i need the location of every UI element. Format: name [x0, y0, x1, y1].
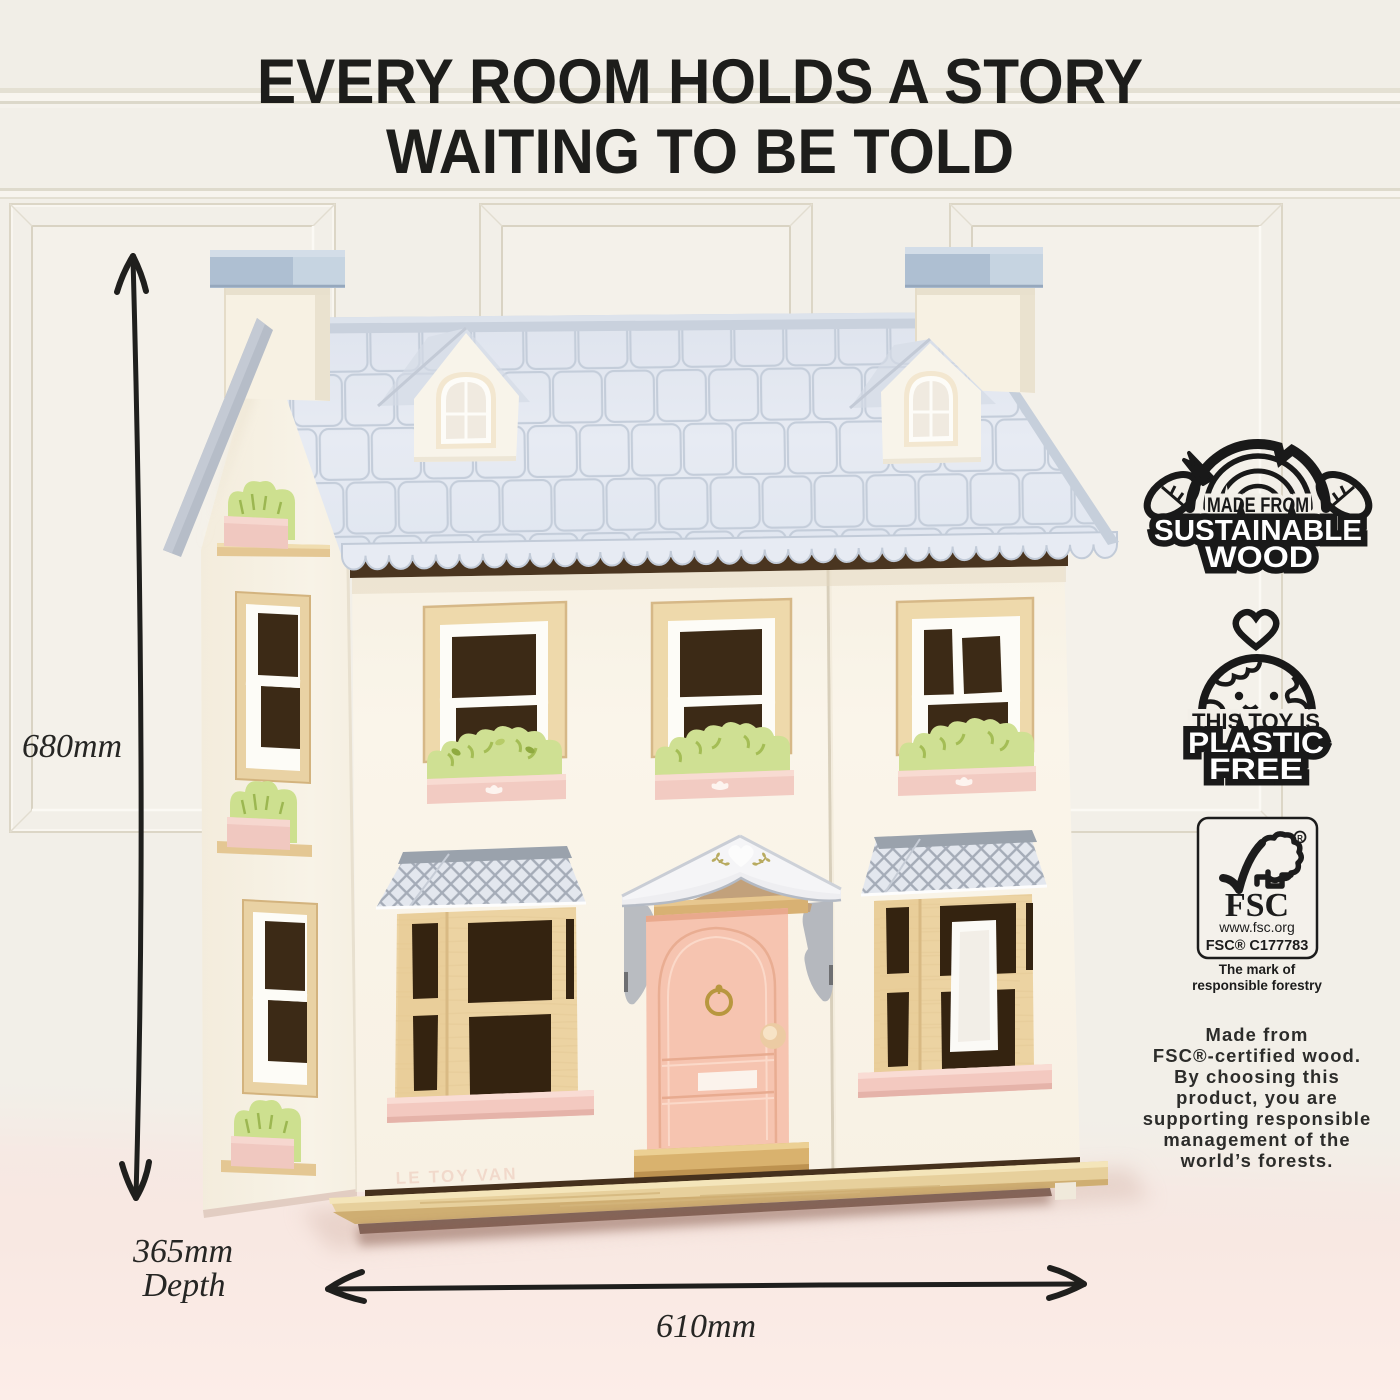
svg-text:WAITING TO BE TOLD: WAITING TO BE TOLD [386, 117, 1014, 187]
svg-text:responsible forestry: responsible forestry [1192, 978, 1322, 993]
svg-text:world’s forests.: world’s forests. [1180, 1150, 1334, 1171]
svg-text:R: R [1297, 834, 1303, 843]
svg-text:FSC® C177783: FSC® C177783 [1206, 938, 1309, 954]
svg-text:FSC®-certified wood.: FSC®-certified wood. [1153, 1045, 1361, 1066]
svg-text:680mm: 680mm [22, 728, 122, 765]
svg-text:WOOD: WOOD [1205, 541, 1313, 574]
svg-text:management of the: management of the [1163, 1129, 1350, 1150]
svg-text:365mm: 365mm [132, 1233, 233, 1270]
svg-text:Made from: Made from [1206, 1024, 1309, 1045]
svg-text:Depth: Depth [141, 1267, 225, 1304]
svg-text:EVERY ROOM HOLDS A STORY: EVERY ROOM HOLDS A STORY [257, 47, 1143, 117]
svg-text:supporting responsible: supporting responsible [1143, 1108, 1372, 1129]
svg-text:610mm: 610mm [656, 1308, 756, 1345]
svg-text:FREE: FREE [1209, 753, 1303, 786]
svg-text:product, you are: product, you are [1176, 1087, 1338, 1108]
svg-text:By choosing this: By choosing this [1174, 1066, 1340, 1087]
svg-text:www.fsc.org: www.fsc.org [1218, 919, 1294, 935]
svg-text:The mark of: The mark of [1219, 962, 1296, 977]
svg-text:MADE FROM: MADE FROM [1207, 494, 1309, 517]
